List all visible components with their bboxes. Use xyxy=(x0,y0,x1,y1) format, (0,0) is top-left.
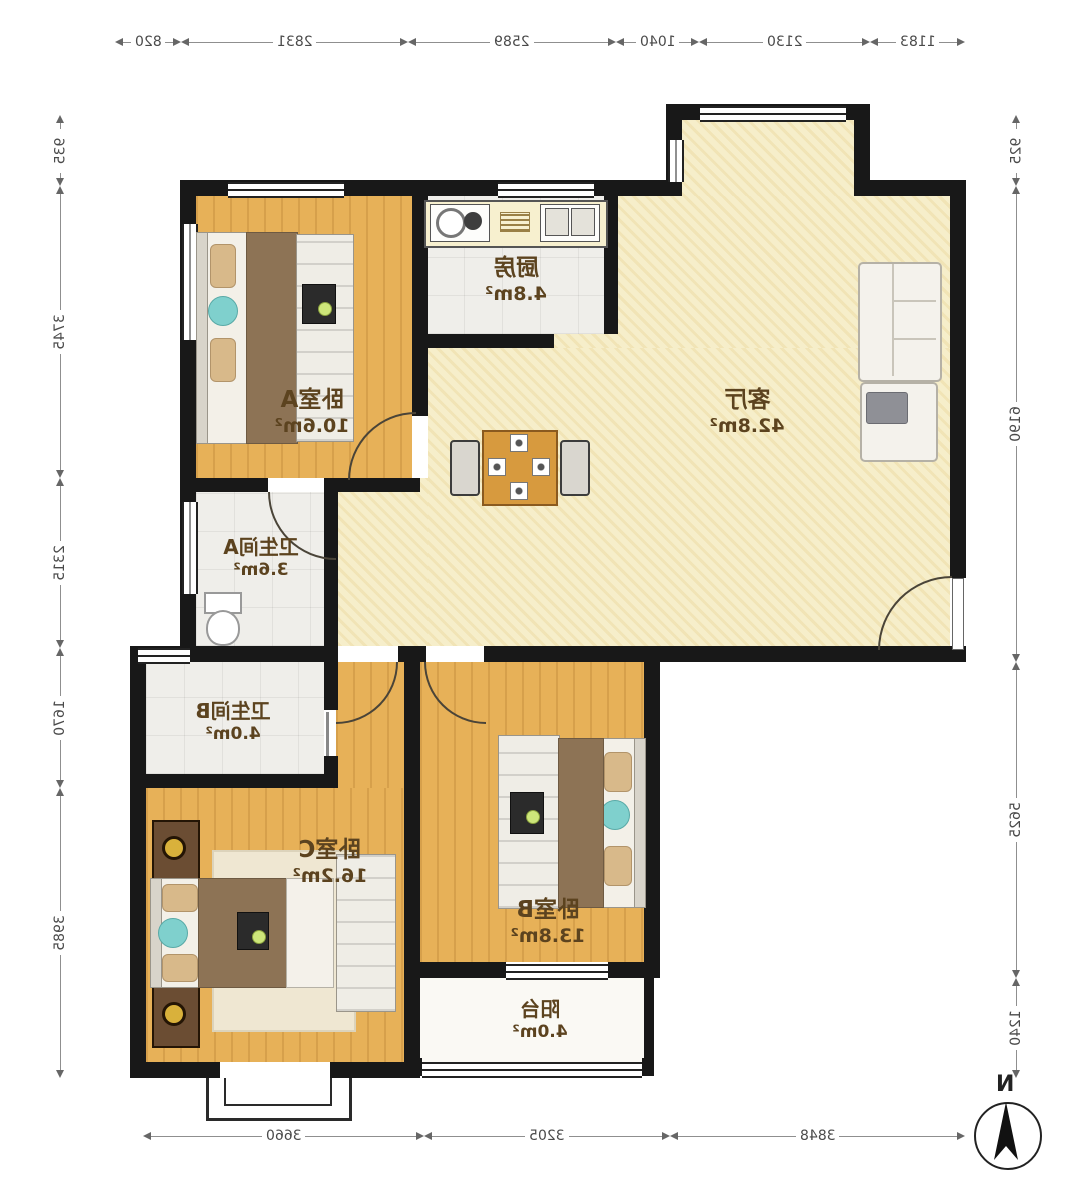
balcony-door-window xyxy=(506,964,608,980)
kitchen-opening-floor xyxy=(554,334,618,348)
pillow xyxy=(162,954,198,982)
window xyxy=(228,182,344,198)
sink-basin xyxy=(545,208,569,236)
dim-top-2: 2589 xyxy=(408,34,616,50)
throw-pillow xyxy=(866,392,908,424)
wall-segment xyxy=(854,180,966,196)
wall-segment xyxy=(644,978,654,1070)
dim-top-0: 820 xyxy=(115,34,181,50)
wall-segment xyxy=(180,478,268,492)
lamp xyxy=(162,836,186,860)
living-bay-floor xyxy=(682,120,854,196)
blanket xyxy=(558,738,604,908)
wall-segment xyxy=(130,774,330,788)
chair xyxy=(450,440,480,496)
window xyxy=(700,106,846,122)
wall-segment xyxy=(642,1058,654,1076)
dim-left-0: 935 xyxy=(52,115,68,186)
compass: N xyxy=(968,1072,1048,1172)
bay-window-inner xyxy=(224,1078,332,1106)
pillow xyxy=(210,338,236,382)
dim-right-2: 5625 xyxy=(1008,662,1024,978)
wall-segment xyxy=(410,1058,422,1076)
wall-segment xyxy=(334,478,420,492)
plate xyxy=(488,458,506,476)
balcony-label: 阳台 4.0m² xyxy=(512,997,567,1043)
window xyxy=(498,182,594,198)
dim-left-2: 2315 xyxy=(52,478,68,648)
dim-top-1: 2831 xyxy=(181,34,408,50)
dim-left-4: 3985 xyxy=(52,788,68,1078)
sofa-divider xyxy=(894,300,936,302)
dim-bottom-2: 3848 xyxy=(670,1128,965,1144)
living-corridor-floor xyxy=(338,478,428,646)
burner xyxy=(436,208,466,238)
dim-left-1: 3745 xyxy=(52,186,68,478)
entry-door-leaf xyxy=(952,578,964,650)
sofa-divider xyxy=(892,264,894,376)
sink-basin xyxy=(571,208,595,236)
bath-b-label: 卫生间B 4.0m² xyxy=(195,699,270,745)
dim-right-0: 925 xyxy=(1008,115,1024,186)
wall-segment xyxy=(950,196,966,578)
dim-top-5: 1183 xyxy=(870,34,965,50)
wall-segment xyxy=(644,646,660,978)
bed-headboard xyxy=(196,232,208,444)
tv xyxy=(237,912,269,950)
wall-segment xyxy=(324,756,338,788)
bed-headboard xyxy=(634,738,646,908)
grill xyxy=(500,212,530,232)
window xyxy=(668,140,684,182)
wall-segment xyxy=(608,962,660,978)
balcony-window xyxy=(422,1062,642,1078)
plate xyxy=(532,458,550,476)
wall-segment xyxy=(404,962,506,978)
dim-bottom-0: 3660 xyxy=(143,1128,424,1144)
living-label: 客厅 42.8m² xyxy=(710,386,785,439)
tv-dot xyxy=(526,810,540,824)
dim-bottom-1: 3205 xyxy=(424,1128,670,1144)
round-cushion xyxy=(158,918,188,948)
window xyxy=(138,648,190,664)
bedroom-a-label: 卧室A 10.6m² xyxy=(275,386,350,439)
dim-left-3: 1670 xyxy=(52,648,68,788)
sofa-divider xyxy=(894,338,936,340)
dim-top-4: 2130 xyxy=(699,34,870,50)
window xyxy=(182,502,198,594)
wall-segment xyxy=(412,334,554,348)
sofa xyxy=(858,262,942,382)
chair xyxy=(560,440,590,496)
plate xyxy=(510,434,528,452)
kitchen-label: 厨房 4.8m² xyxy=(485,254,547,307)
pillow xyxy=(210,244,236,288)
pillow xyxy=(162,884,198,912)
pillow xyxy=(604,752,632,792)
round-cushion xyxy=(208,296,238,326)
compass-needle-icon xyxy=(974,1098,1038,1166)
wall-segment xyxy=(404,646,420,1078)
dim-right-1: 6190 xyxy=(1008,186,1024,662)
bath-b-door-leaf xyxy=(326,712,329,756)
tv-dot xyxy=(318,302,332,316)
toilet-bowl xyxy=(206,610,240,646)
dim-top-3: 1040 xyxy=(616,34,699,50)
wall-segment xyxy=(130,1062,220,1078)
dim-right-3: 1240 xyxy=(1008,978,1024,1078)
bedroom-c-label: 卧室C 16.2m² xyxy=(293,836,368,889)
wall-segment xyxy=(854,104,870,196)
plate xyxy=(510,482,528,500)
folded-sheet xyxy=(286,878,334,988)
wall-segment xyxy=(130,646,146,1078)
floor-plan: 卧室A 10.6m² 厨房 4.8m² 客厅 42.8m² 卫生间A 3.6m²… xyxy=(0,0,1080,1190)
bedroom-b-label: 卧室B 13.8m² xyxy=(511,896,586,949)
lamp xyxy=(162,1002,186,1026)
tv-dot xyxy=(252,930,266,944)
burner xyxy=(464,212,482,230)
round-cushion xyxy=(600,800,630,830)
bath-a-label: 卫生间A 3.6m² xyxy=(223,535,298,581)
pillow xyxy=(604,846,632,886)
